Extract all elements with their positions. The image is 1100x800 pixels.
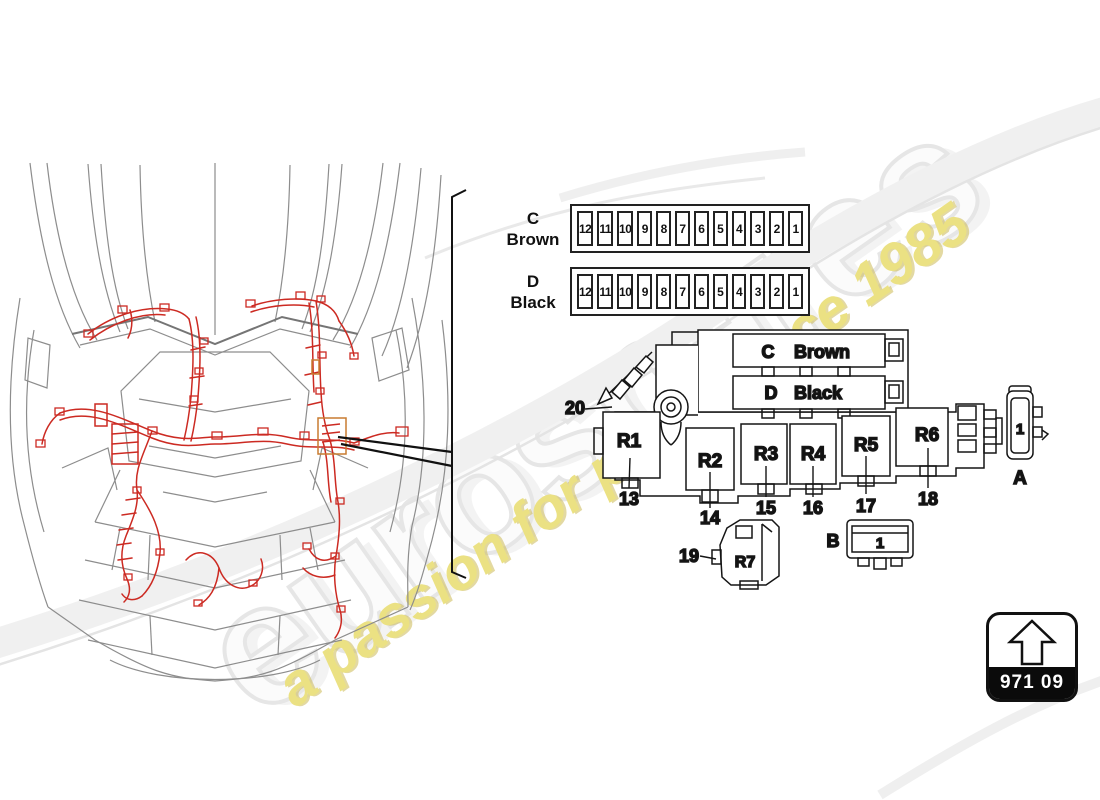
fuse-row-d-letter: D [498, 271, 568, 292]
up-arrow-icon [989, 615, 1075, 667]
diagram-artwork: C Brown D Black R1 R2 R3 R4 R5 R6 13 14 … [0, 0, 1100, 800]
fuse-d-9: 9 [637, 274, 652, 309]
fuse-c-5: 5 [713, 211, 728, 246]
callout-bracket [452, 190, 466, 578]
fuse-d-6: 6 [694, 274, 709, 309]
part-number-text: 971 09 [989, 667, 1075, 699]
fuse-d-11: 11 [597, 274, 613, 309]
fuse-c-10: 10 [617, 211, 633, 246]
fuse-c-9: 9 [637, 211, 652, 246]
fuse-c-8: 8 [656, 211, 671, 246]
fuse-d-7: 7 [675, 274, 690, 309]
relay-r5-label: R5 [854, 435, 879, 456]
fuse-d-4: 4 [732, 274, 747, 309]
relay-r4-label: R4 [801, 444, 826, 465]
relay-r2-label: R2 [698, 451, 722, 472]
fuse-d-12: 12 [577, 274, 593, 309]
part-b-label: B [827, 531, 840, 551]
fuse-c-1: 1 [788, 211, 803, 246]
fuse-d-10: 10 [617, 274, 633, 309]
callout-17: 17 [856, 496, 876, 516]
callout-16: 16 [803, 498, 823, 518]
fuse-row-c-label: C Brown [498, 208, 568, 250]
fuse-row-d: 12 11 10 9 8 7 6 5 4 3 2 1 [570, 267, 810, 316]
fuse-row-d-label: D Black [498, 271, 568, 313]
callout-20: 20 [565, 398, 585, 418]
relay-r3-label: R3 [754, 444, 778, 465]
callout-18: 18 [918, 489, 938, 509]
fuse-d-1: 1 [788, 274, 803, 309]
part-b: B 1 [827, 520, 914, 569]
fuse-row-c-name: Brown [498, 229, 568, 250]
relay-r7-part: R7 19 [679, 520, 779, 589]
relay-r1-label: R1 [617, 431, 642, 452]
callout-15: 15 [756, 498, 776, 518]
fuse-d-3: 3 [750, 274, 765, 309]
fuse-c-3: 3 [750, 211, 765, 246]
slot-c-name: Brown [794, 342, 850, 362]
slot-d-name: Black [794, 383, 843, 403]
fuse-row-d-name: Black [498, 292, 568, 313]
callout-19: 19 [679, 546, 699, 566]
fuse-c-11: 11 [597, 211, 613, 246]
fuse-c-4: 4 [732, 211, 747, 246]
parts-diagram-page: eurospares a passion for parts since 198… [0, 0, 1100, 800]
part-a-value: 1 [1016, 421, 1024, 438]
callout-13: 13 [619, 489, 639, 509]
relay-r7-label: R7 [735, 554, 756, 571]
callout-14: 14 [700, 508, 720, 528]
fuse-row-c: 12 11 10 9 8 7 6 5 4 3 2 1 [570, 204, 810, 253]
fuse-c-6: 6 [694, 211, 709, 246]
fuse-row-c-letter: C [498, 208, 568, 229]
part-a-label: A [1013, 468, 1027, 489]
pointer-lines [338, 437, 452, 466]
slot-c-letter: C [762, 342, 775, 362]
part-a: 1 A [1007, 386, 1048, 489]
fuse-d-8: 8 [656, 274, 671, 309]
part-number-badge: 971 09 [986, 612, 1078, 702]
part-b-value: 1 [876, 535, 884, 552]
fuse-c-12: 12 [577, 211, 593, 246]
relay-r6-label: R6 [915, 425, 939, 446]
slot-d-letter: D [765, 383, 778, 403]
fuse-d-2: 2 [769, 274, 784, 309]
fuse-d-5: 5 [713, 274, 728, 309]
fuse-c-2: 2 [769, 211, 784, 246]
fuse-c-7: 7 [675, 211, 690, 246]
